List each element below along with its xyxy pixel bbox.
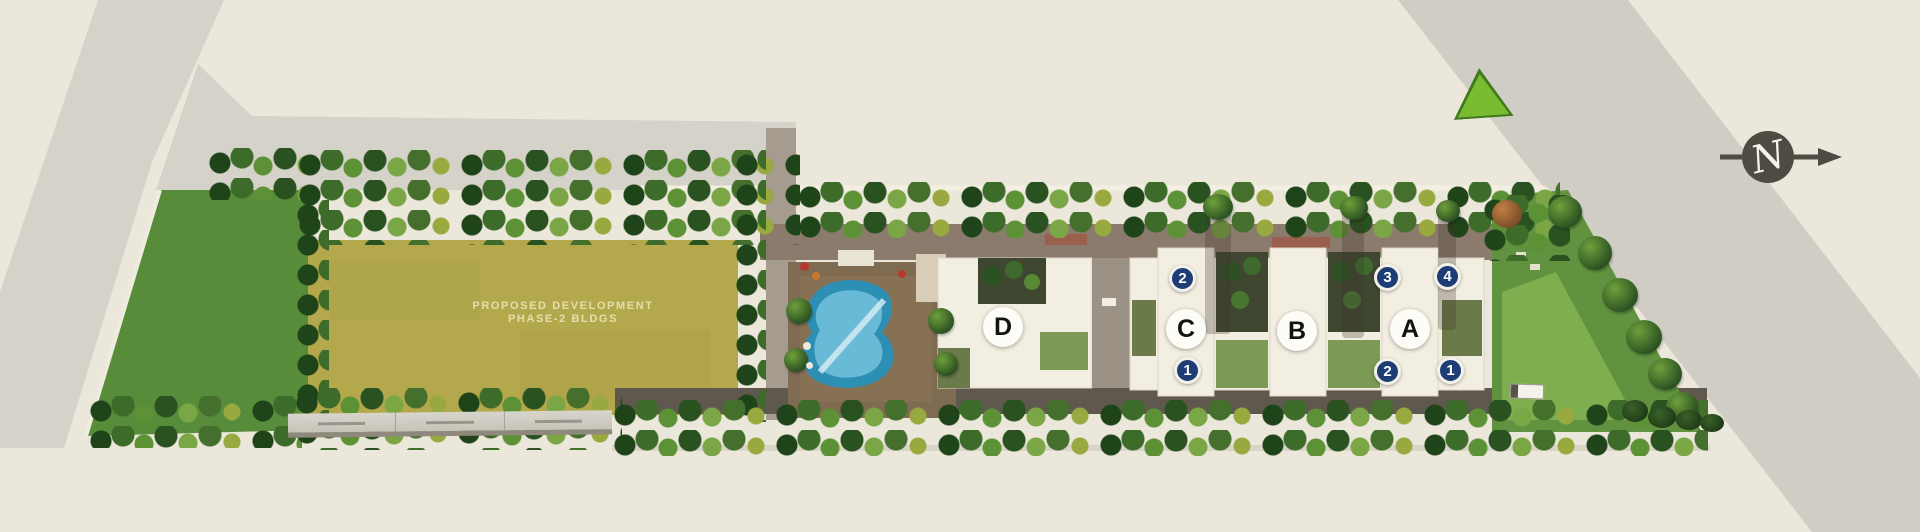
park-tree-autumn [1492, 200, 1522, 228]
park-tree [1626, 320, 1662, 354]
marker-label: 1 [1446, 363, 1454, 378]
block-d-label: D [994, 315, 1012, 340]
palm-shadow [1205, 208, 1231, 334]
tree-border-bottom-right [610, 400, 1708, 456]
roadside-bush [1700, 414, 1724, 432]
block-badge-a[interactable]: A [1390, 309, 1430, 349]
roadside-bush [1648, 406, 1676, 428]
park-tree [1648, 358, 1682, 390]
palm-canopy [1203, 194, 1233, 220]
d-c-access-road [1092, 258, 1130, 388]
palm-canopy [1436, 200, 1460, 222]
block-a-label: A [1401, 317, 1419, 342]
unit-marker-1-bottom-a[interactable]: 1 [1437, 357, 1464, 384]
block-badge-d[interactable]: D [983, 307, 1023, 347]
marker-label: 2 [1178, 271, 1186, 286]
roadside-bush [1676, 410, 1702, 430]
umbrella-white [806, 362, 813, 369]
tree-border-top-lawn [205, 148, 305, 200]
unit-marker-2-bottom-a[interactable]: 2 [1374, 358, 1401, 385]
umbrella-white [803, 342, 811, 350]
tree-column-plot-right [732, 150, 766, 422]
block-badge-b[interactable]: B [1277, 311, 1317, 351]
green-triangle-marker [1450, 66, 1513, 120]
tree-border-top-left [295, 150, 800, 245]
phase2-plot-label: PROPOSED DEVELOPMENT PHASE-2 BLDGS [428, 300, 698, 326]
triangle-fill [1455, 72, 1510, 118]
block-badge-c[interactable]: C [1166, 309, 1206, 349]
unit-marker-1-bottom-c[interactable]: 1 [1174, 357, 1201, 384]
phase2-label-line1: PROPOSED DEVELOPMENT [428, 300, 698, 313]
unit-marker-3-top-a[interactable]: 3 [1374, 264, 1401, 291]
site-master-plan: PROPOSED DEVELOPMENT PHASE-2 BLDGS D C B… [0, 0, 1920, 532]
block-c-label: C [1177, 317, 1195, 342]
north-compass: N [1700, 105, 1850, 215]
marker-label: 1 [1183, 363, 1191, 378]
umbrella-red [800, 262, 809, 271]
block-b-label: B [1288, 319, 1306, 344]
wall-label-segment [396, 411, 505, 431]
marker-label: 3 [1383, 270, 1391, 285]
unit-marker-4-top-a[interactable]: 4 [1434, 263, 1461, 290]
compass-arrow-head [1818, 148, 1842, 166]
palm-canopy [1340, 196, 1368, 220]
wall-label-segment [505, 410, 613, 430]
roadside-bush [1622, 400, 1648, 422]
truck-cab [1511, 384, 1518, 397]
compound-wall-labels [288, 410, 612, 437]
unit-marker-2-top-c[interactable]: 2 [1169, 265, 1196, 292]
marker-label: 2 [1383, 364, 1391, 379]
phase2-label-line2: PHASE-2 BLDGS [428, 313, 698, 326]
amenity-tree [786, 298, 812, 324]
marker-label: 4 [1443, 269, 1451, 284]
park-tree [1578, 236, 1612, 270]
palm-shadow [1342, 208, 1364, 338]
wall-label-segment [288, 413, 397, 433]
park-tree [1548, 196, 1582, 228]
umbrella-orange [812, 272, 820, 280]
truck [1510, 383, 1545, 399]
amenity-tree [934, 352, 958, 376]
amenity-tree [928, 308, 954, 334]
amenity-tree [784, 348, 808, 372]
tree-border-bottom-lawn [86, 396, 302, 448]
umbrella-red [898, 270, 906, 278]
speed-breaker-2 [1272, 237, 1330, 248]
park-tree [1602, 278, 1638, 312]
clubhouse-building [838, 250, 874, 266]
